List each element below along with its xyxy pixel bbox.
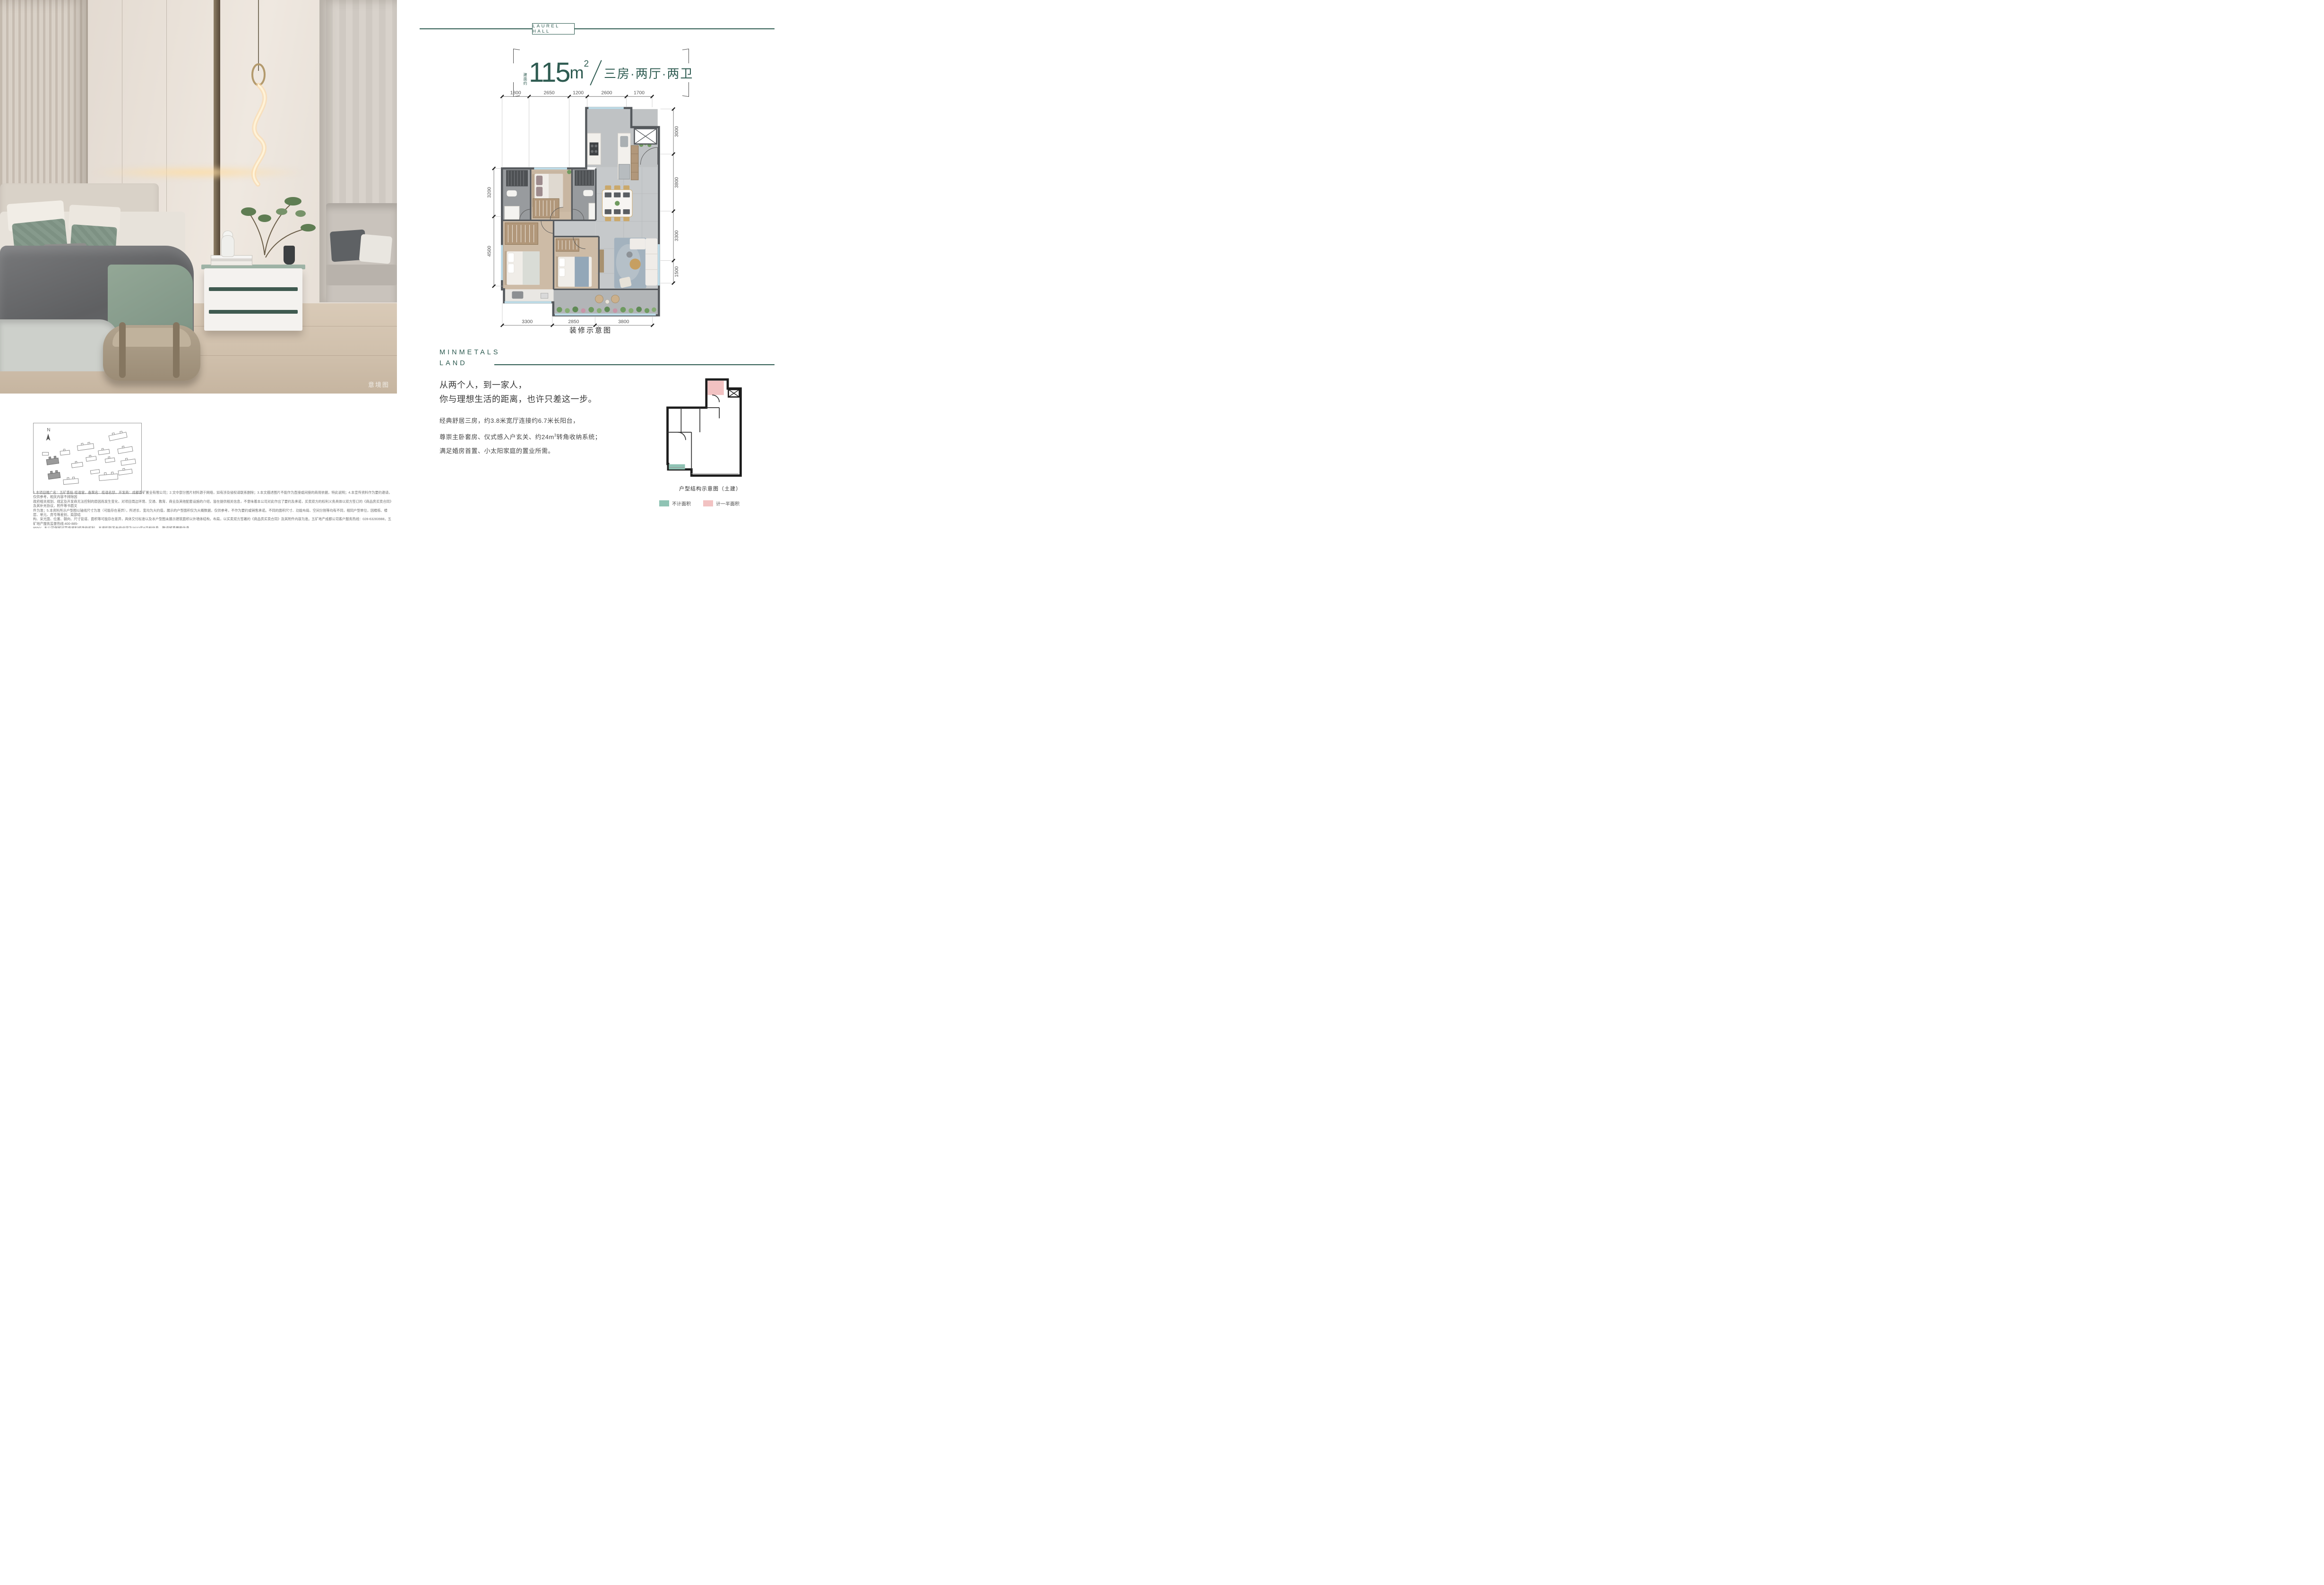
- dim-right: 3000: [674, 126, 680, 137]
- headline-line1: 从两个人，到一家人，: [439, 378, 597, 392]
- divider-slash: [590, 60, 602, 86]
- area-superscript: 2: [584, 62, 589, 67]
- bench-pillow-light: [359, 234, 393, 264]
- highlighted-buildings: [46, 456, 60, 480]
- body-line2-pre: 尊崇主卧套房、仪式感入户玄关、约24m: [439, 433, 554, 440]
- dim-top: 2600: [601, 90, 612, 95]
- site-map-art: N: [34, 423, 140, 492]
- brand-line1: MINMETALS: [439, 347, 500, 358]
- drawer-handle: [209, 287, 298, 291]
- header-rule-line: [420, 28, 775, 29]
- dim-left: 4500: [487, 246, 492, 257]
- bedroom-photo: 意境图: [0, 0, 397, 394]
- structural-plan-caption: 户型结构示意图（土建）: [654, 485, 767, 492]
- legal-disclaimer: 1.本项目推广名：五矿香投·桂语堂，备案名：桂语名邸，开发商：成都香矿置业有限公…: [33, 490, 393, 528]
- dim-right: 3800: [674, 177, 680, 188]
- bench-cushion: [326, 265, 397, 285]
- area-unit: m: [569, 63, 584, 83]
- body-line2-post: 转角收纳系统；: [557, 433, 602, 440]
- brand-line2: LAND: [439, 358, 500, 369]
- north-label: N: [47, 428, 50, 433]
- drawer-handle: [209, 310, 298, 314]
- north-arrow: N: [46, 428, 50, 441]
- light-blanket: [0, 319, 118, 371]
- duffel-strap: [173, 322, 180, 378]
- dim-right: 3300: [674, 230, 680, 241]
- area-legend: 不计面积 计一半面积: [659, 500, 740, 507]
- dim-right: 1500: [674, 266, 680, 277]
- body-line2: 尊崇主卧套房、仪式感入户玄关、约24m3转角收纳系统；: [439, 428, 601, 445]
- photo-watermark: 意境图: [368, 380, 389, 389]
- dim-top: 1800: [510, 90, 521, 95]
- disclaimer-line: 政府相关规划、规定及开发商无法控制的原因而发生变化，对项目周边环境、交通、教育、…: [33, 499, 393, 508]
- dim-top: 1700: [634, 90, 645, 95]
- layout-description: 三房·两厅·两卫: [604, 64, 693, 82]
- headline: 从两个人，到一家人， 你与理想生活的距离，也许只差这一步。: [439, 378, 597, 406]
- site-map: N: [33, 423, 142, 494]
- dim-bottom: 3300: [522, 319, 533, 325]
- nightstand: [204, 268, 302, 331]
- disclaimer-line: 1.本项目推广名：五矿香投·桂语堂，备案名：桂语名邸，开发商：成都香矿置业有限公…: [33, 490, 393, 499]
- dim-bottom: 3800: [618, 319, 629, 325]
- legend-swatch-excluded: [659, 500, 669, 506]
- duffel-strap: [119, 322, 126, 378]
- structural-plan: [654, 375, 767, 481]
- brand-logo: MINMETALS LAND: [439, 347, 500, 369]
- structural-plan-art: [654, 375, 767, 481]
- legend-label-excluded: 不计面积: [672, 500, 691, 507]
- body-copy: 经典舒居三房，约3.8米宽厅连接约6.7米长阳台， 尊崇主卧套房、仪式感入户玄关…: [439, 414, 601, 459]
- dim-top: 2650: [544, 90, 555, 95]
- disclaimer-line: 构、采光面、位置、朝向、尺寸管道、面积等可能存在差异，具体交付标准以及本户型图未…: [33, 517, 393, 526]
- disclaimer-line: 件为准；5.本资料所示户型图以轴线尺寸为准（可能存在差异），所述长、宽均为大约值…: [33, 508, 393, 517]
- legend-swatch-half: [703, 500, 713, 506]
- headline-line2: 你与理想生活的距离，也许只差这一步。: [439, 392, 597, 406]
- plant-vase: [284, 246, 295, 265]
- floor-plan: 1800 2650 1200 2600 1700 3300 2850 3800 …: [474, 85, 724, 334]
- brand-rule-line: [494, 364, 775, 365]
- dim-left: 3200: [487, 187, 492, 198]
- disclaimer-line: 9550；本公司保留对宣传资料修改的权利，本资料所发布的内容为2022年6月前信…: [33, 526, 393, 528]
- dim-top: 1200: [573, 90, 584, 95]
- body-line1: 经典舒居三房，约3.8米宽厅连接约6.7米长阳台，: [439, 414, 601, 428]
- legend-label-half: 计一半面积: [716, 500, 740, 507]
- header-badge: LAUREL HALL: [532, 23, 575, 34]
- plan-caption: 装修示意图: [534, 325, 647, 335]
- figurine: [221, 235, 234, 257]
- dim-bottom: 2850: [568, 319, 579, 325]
- body-line3: 满足婚房首置、小太阳家庭的置业所需。: [439, 444, 601, 459]
- floor-plan-art: 1800 2650 1200 2600 1700 3300 2850 3800 …: [474, 85, 724, 334]
- brochure-page: 意境图 N: [0, 0, 775, 528]
- bracket-mark: [513, 49, 520, 64]
- area-prefix-label: 建面约: [523, 73, 528, 86]
